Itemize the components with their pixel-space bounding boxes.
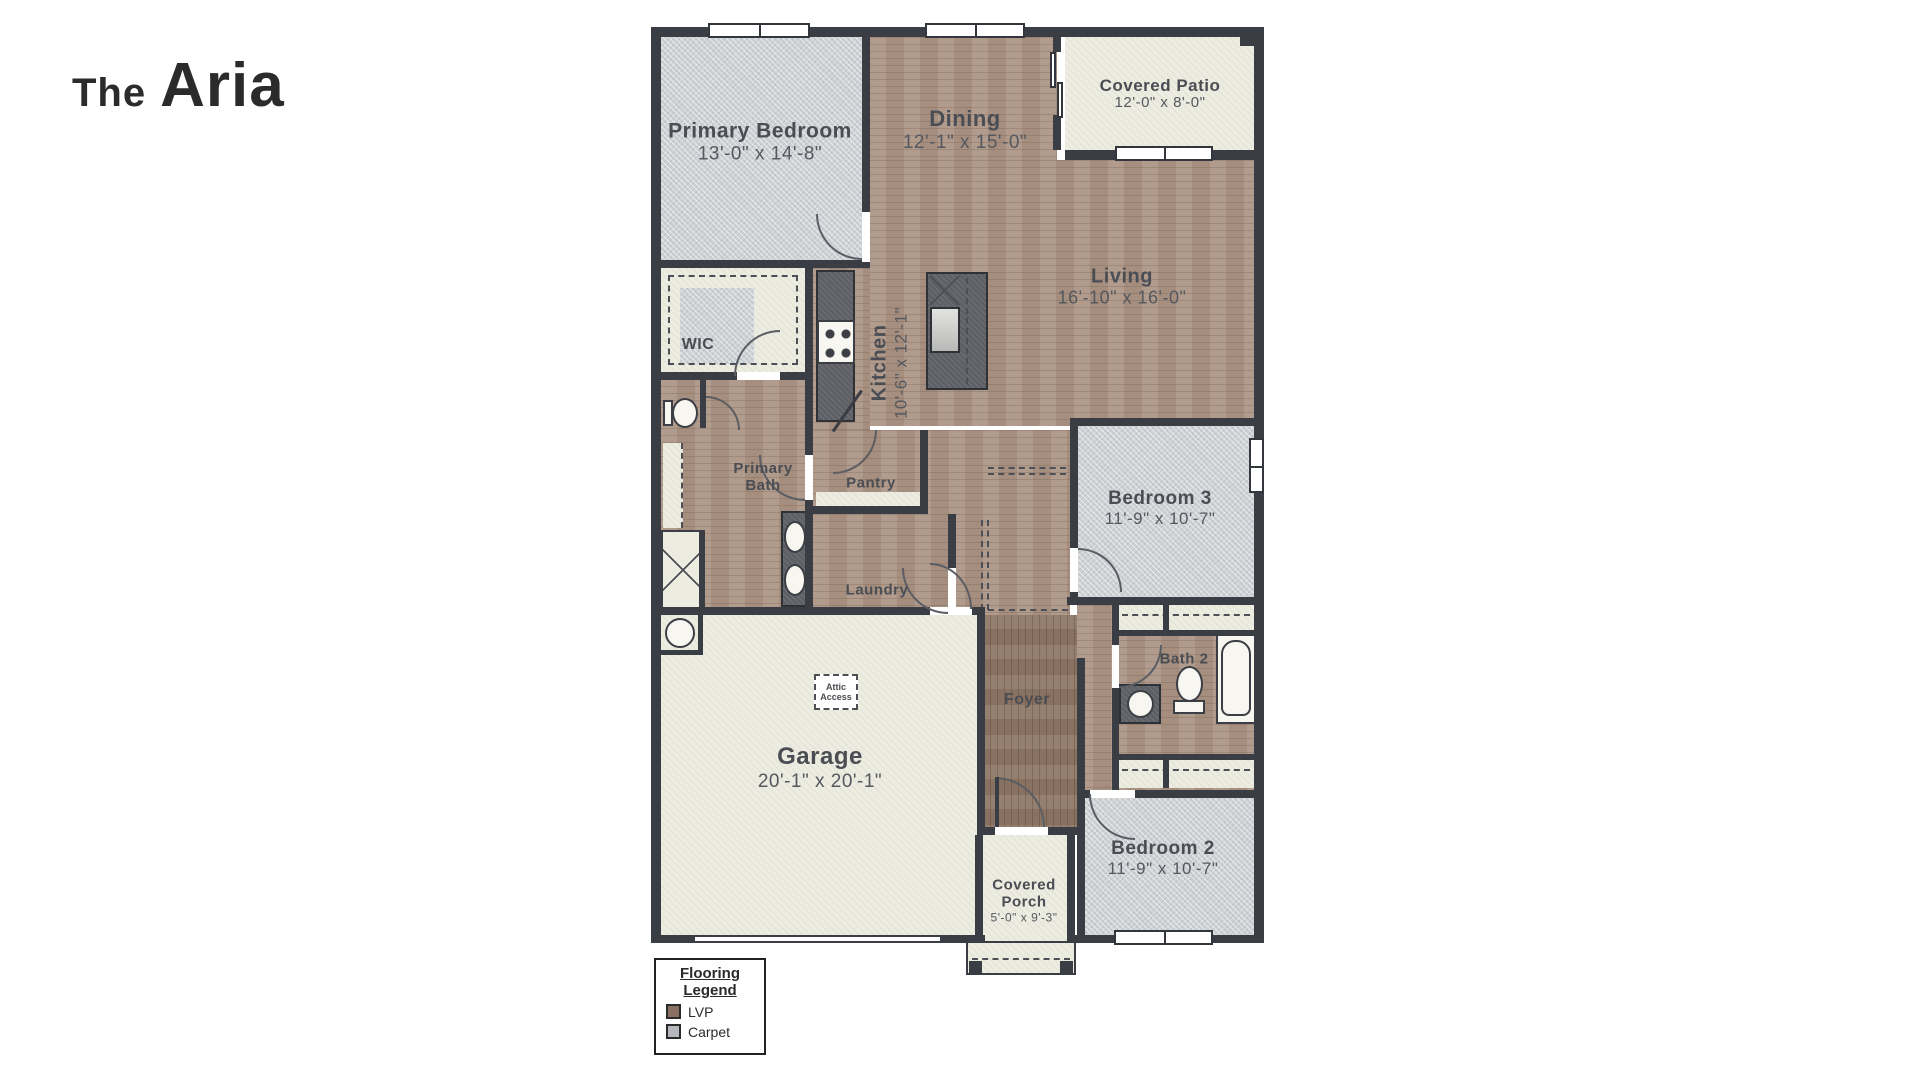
garage-dims: 20'-1" x 20'-1" (758, 771, 882, 792)
attic-access-name: Attic Access (815, 682, 857, 702)
carpet-swatch-icon (666, 1024, 681, 1039)
room-label-primary-bedroom: Primary Bedroom 13'-0" x 14'-8" (668, 120, 852, 165)
bath2-sink-icon (1127, 690, 1154, 718)
wall (699, 530, 705, 610)
wall (805, 500, 813, 615)
dining-name: Dining (903, 107, 1027, 132)
wall (972, 607, 985, 615)
ceiling-break-dash (988, 609, 1068, 611)
door-opening (805, 455, 813, 500)
ceiling-break-dash (988, 473, 1066, 475)
wall (977, 827, 995, 835)
wall (862, 37, 870, 212)
plan-title-name: Aria (160, 50, 285, 121)
primary-bath-name: Primary Bath (726, 461, 800, 495)
bedroom2-dims: 11'-9" x 10'-7" (1108, 859, 1219, 878)
pantry-shelf (816, 492, 920, 506)
living-name: Living (1058, 266, 1187, 288)
covered-patio-dims: 12'-0" x 8'-0" (1100, 95, 1221, 112)
room-label-covered-patio: Covered Patio 12'-0" x 8'-0" (1100, 76, 1221, 112)
lvp-label: LVP (688, 1004, 713, 1020)
room-label-attic-access: Attic Access (815, 682, 857, 702)
window (1249, 438, 1264, 493)
laundry-name: Laundry (846, 583, 909, 600)
wall (1053, 115, 1061, 150)
wall (1048, 827, 1077, 835)
wall (975, 835, 983, 943)
carpet-label: Carpet (688, 1024, 730, 1040)
porch-step-dash (972, 958, 1070, 960)
floorplan-page: The Aria (0, 0, 1920, 1080)
room-label-garage: Garage 20'-1" x 20'-1" (758, 744, 882, 792)
door-opening (1070, 548, 1078, 592)
room-label-primary-bath: Primary Bath (726, 461, 800, 495)
wall (948, 514, 956, 568)
flooring-legend: Flooring Legend LVP Carpet (654, 958, 766, 1055)
patio-slider-door (1050, 52, 1056, 88)
closet-rod-dash (1122, 769, 1250, 771)
wall (1053, 37, 1061, 52)
window (925, 23, 1025, 38)
island-overhang-dash (966, 278, 968, 384)
wall (1077, 658, 1085, 796)
plan-title: The Aria (72, 50, 285, 121)
patio-corner-post (1240, 31, 1258, 46)
window (1115, 146, 1213, 161)
room-label-pantry: Pantry (846, 476, 896, 493)
linen-closet (663, 443, 683, 528)
kitchen-sink-icon (930, 307, 960, 353)
wall (1135, 790, 1264, 798)
bedroom3-closet (1112, 602, 1254, 633)
closet-rod-dash (1122, 614, 1250, 616)
ceiling-break-dash (988, 467, 1066, 469)
room-label-living: Living 16'-10" x 16'-0" (1058, 266, 1187, 309)
bath2-name: Bath 2 (1160, 652, 1209, 669)
door-leaf (995, 777, 999, 827)
wall (651, 27, 661, 943)
porch-post (969, 961, 982, 973)
wall (1112, 688, 1119, 790)
foyer-name: Foyer (1004, 691, 1050, 709)
wall (1067, 597, 1254, 605)
bedroom3-name: Bedroom 3 (1105, 488, 1216, 509)
room-label-laundry: Laundry (846, 583, 909, 600)
wall (1070, 426, 1078, 548)
wall (661, 372, 737, 380)
room-label-covered-porch: Covered Porch 5'-0" x 9'-3" (987, 877, 1061, 924)
wall (1112, 605, 1119, 645)
covered-porch-dims: 5'-0" x 9'-3" (987, 911, 1061, 924)
wall (805, 268, 813, 455)
room-label-bath2: Bath 2 (1160, 652, 1209, 669)
door-opening (1112, 645, 1119, 688)
dining-dims: 12'-1" x 15'-0" (903, 132, 1027, 153)
garage-door-opening (695, 936, 940, 942)
wall (661, 607, 930, 615)
wall (1163, 760, 1169, 788)
patio-slider-door (1057, 82, 1063, 118)
bedroom2-closet (1112, 757, 1254, 788)
flooring-legend-title: Flooring Legend (670, 965, 750, 1000)
wall (1119, 630, 1254, 636)
room-label-bedroom3: Bedroom 3 11'-9" x 10'-7" (1105, 488, 1216, 528)
wall (1067, 835, 1075, 943)
door-opening (862, 212, 870, 262)
legend-item-carpet: Carpet (666, 1024, 764, 1040)
bath2-toilet-icon (1176, 666, 1203, 702)
wall (661, 260, 862, 268)
wall (920, 430, 928, 514)
bedroom3-dims: 11'-9" x 10'-7" (1105, 509, 1216, 528)
room-label-wic: WIC (682, 336, 715, 354)
porch-post (1060, 961, 1073, 973)
wall (1070, 418, 1262, 426)
wall (1077, 796, 1085, 935)
bedroom2-name: Bedroom 2 (1108, 838, 1219, 859)
legend-item-lvp: LVP (666, 1004, 764, 1020)
primary-bedroom-dims: 13'-0" x 14'-8" (668, 143, 852, 164)
primary-toilet-icon (672, 398, 698, 428)
bath2-toilet-base (1173, 700, 1205, 714)
room-label-dining: Dining 12'-1" x 15'-0" (903, 107, 1027, 153)
door-opening (995, 827, 1048, 835)
wic-name: WIC (682, 336, 715, 354)
pantry-name: Pantry (846, 476, 896, 493)
plan-title-prefix: The (72, 71, 146, 116)
room-label-bedroom2: Bedroom 2 11'-9" x 10'-7" (1108, 838, 1219, 878)
wall (1163, 602, 1169, 630)
wall (780, 372, 813, 380)
window (1114, 930, 1213, 945)
garage-name: Garage (758, 744, 882, 771)
wall (977, 615, 985, 835)
ceiling-break-dash (987, 520, 989, 610)
covered-patio-name: Covered Patio (1100, 76, 1221, 95)
room-label-foyer: Foyer (1004, 691, 1050, 709)
wall (862, 262, 870, 268)
window (708, 23, 810, 38)
wall (1119, 754, 1254, 760)
primary-bedroom-name: Primary Bedroom (668, 120, 852, 144)
water-heater-icon (665, 618, 695, 648)
lvp-swatch-icon (666, 1004, 681, 1019)
living-dims: 16'-10" x 16'-0" (1058, 288, 1187, 308)
ceiling-break-dash (981, 520, 983, 610)
room-label-kitchen: Kitchen 10'-6" x 12'-1" (869, 307, 912, 419)
primary-sink-icon (784, 521, 806, 553)
bathtub-inner (1221, 640, 1251, 716)
primary-sink2-icon (784, 564, 806, 596)
kitchen-dims: 10'-6" x 12'-1" (892, 307, 912, 419)
island-cabinet-x (929, 276, 960, 305)
covered-porch-name: Covered Porch (987, 877, 1061, 911)
kitchen-name: Kitchen (869, 307, 892, 419)
stove-icon (817, 320, 855, 364)
wall (813, 506, 928, 514)
